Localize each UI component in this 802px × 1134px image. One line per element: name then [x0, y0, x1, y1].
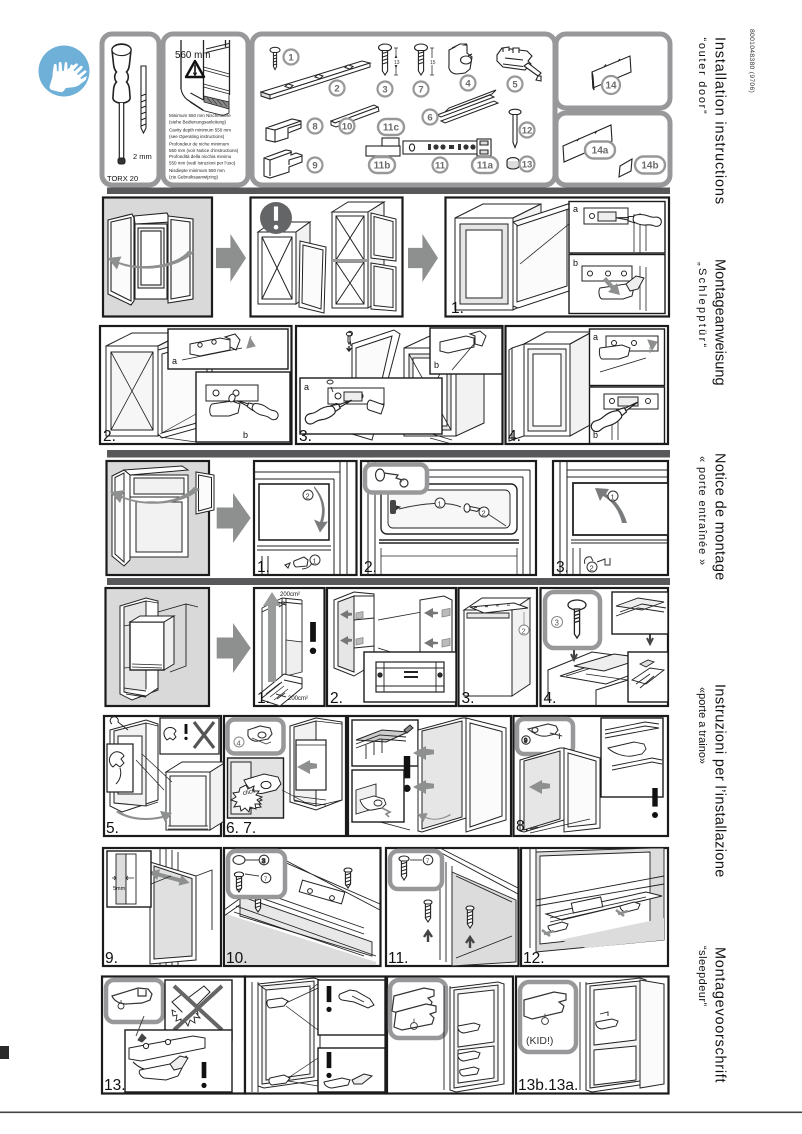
svg-text:(KID!): (KID!) — [526, 1035, 553, 1047]
svg-text:1: 1 — [438, 500, 442, 509]
svg-text:3: 3 — [262, 858, 266, 865]
svg-text:5: 5 — [512, 79, 518, 90]
svg-text:550 mm (voir Notice d’instruct: 550 mm (voir Notice d’instructions) — [169, 148, 239, 153]
svg-text:1.: 1. — [451, 300, 464, 317]
svg-text:a: a — [593, 332, 598, 342]
svg-text:2: 2 — [334, 83, 339, 94]
svg-text:9: 9 — [312, 160, 317, 171]
svg-text:a: a — [172, 356, 177, 366]
svg-text:Montageanweisung: Montageanweisung — [712, 259, 728, 386]
svg-text:Minimum 550 mm Nischentiefe: Minimum 550 mm Nischentiefe — [169, 113, 231, 118]
svg-text:«porte a traino»: «porte a traino» — [696, 687, 708, 764]
svg-text:Cavity depth minimum 550 mm: Cavity depth minimum 550 mm — [169, 128, 231, 133]
svg-text:« porte entraînée »: « porte entraînée » — [696, 456, 708, 566]
svg-text:3.: 3. — [299, 428, 312, 445]
svg-text:TORX 20: TORX 20 — [107, 174, 138, 183]
svg-text:14b: 14b — [641, 161, 658, 172]
svg-text:6. 7.: 6. 7. — [226, 820, 256, 837]
svg-text:9.: 9. — [105, 950, 118, 967]
svg-text:Installation instructions: Installation instructions — [712, 37, 728, 205]
svg-text:11b: 11b — [374, 161, 391, 172]
svg-text:8.: 8. — [516, 818, 529, 835]
svg-text:5.: 5. — [106, 820, 119, 837]
svg-text:15: 15 — [430, 60, 436, 66]
svg-text:7: 7 — [264, 876, 268, 883]
svg-text:12.: 12. — [523, 950, 545, 967]
svg-text:Profondità della nicchia minim: Profondità della nicchia minimo — [169, 154, 232, 159]
svg-text:13b.13a.: 13b.13a. — [518, 1077, 578, 1094]
svg-text:(siehe Bedienungsanleitung): (siehe Bedienungsanleitung) — [169, 120, 227, 125]
svg-text:4: 4 — [465, 78, 471, 89]
svg-text:13.: 13. — [104, 1077, 126, 1094]
svg-text:b: b — [243, 430, 248, 440]
svg-text:Montagevoorschrift: Montagevoorschrift — [712, 947, 728, 1083]
svg-text:14a: 14a — [592, 146, 609, 157]
svg-text:560 mm: 560 mm — [175, 50, 210, 61]
svg-text:1: 1 — [288, 52, 294, 63]
svg-text:4: 4 — [237, 739, 241, 748]
svg-text:„Schlepptür“: „Schlepptür“ — [696, 262, 708, 350]
svg-text:Profondeur de niche minimum: Profondeur de niche minimum — [169, 142, 229, 147]
svg-text:4.: 4. — [508, 428, 521, 445]
svg-text:7: 7 — [418, 84, 423, 95]
svg-text:4.: 4. — [544, 690, 557, 707]
svg-text:5mm: 5mm — [113, 886, 126, 892]
svg-text:10.: 10. — [226, 950, 248, 967]
svg-text:1: 1 — [611, 493, 615, 502]
svg-text:7: 7 — [426, 858, 430, 865]
svg-text:8: 8 — [312, 121, 317, 132]
svg-text:1.: 1. — [257, 559, 270, 576]
svg-text:11: 11 — [435, 160, 446, 171]
svg-text:13: 13 — [522, 159, 533, 170]
svg-text:14: 14 — [605, 81, 617, 92]
svg-text:“outer door”: “outer door” — [696, 38, 708, 116]
svg-text:3: 3 — [382, 84, 387, 95]
svg-text:Instruzioni per l’installazion: Instruzioni per l’installazione — [712, 684, 728, 878]
svg-text:3: 3 — [555, 619, 560, 628]
svg-text:13: 13 — [394, 60, 400, 66]
svg-text:2.: 2. — [103, 428, 116, 445]
svg-text:200cm²: 200cm² — [280, 592, 300, 598]
svg-text:b: b — [434, 360, 439, 370]
svg-text:1.: 1. — [257, 690, 270, 707]
svg-text:Nisdiepte minimum 550 mm: Nisdiepte minimum 550 mm — [169, 168, 225, 173]
svg-text:8001048380 (9706): 8001048380 (9706) — [748, 29, 755, 93]
svg-text:“sleepdeur”: “sleepdeur” — [696, 946, 708, 1007]
svg-text:2.: 2. — [330, 690, 343, 707]
svg-text:2: 2 — [306, 492, 310, 501]
svg-text:10: 10 — [342, 121, 353, 132]
svg-text:200cm²: 200cm² — [288, 696, 308, 702]
svg-text:2 mm: 2 mm — [133, 152, 152, 161]
svg-text:6: 6 — [427, 112, 432, 123]
svg-text:1: 1 — [313, 557, 317, 566]
svg-text:550 mm (vedi Istruzioni per l’: 550 mm (vedi Istruzioni per l’uso) — [169, 161, 236, 166]
svg-text:a: a — [573, 204, 578, 214]
svg-text:(zie Gebruiksaanwijzing): (zie Gebruiksaanwijzing) — [169, 175, 219, 180]
svg-text:3.: 3. — [556, 559, 569, 576]
svg-text:(see Operating instructions): (see Operating instructions) — [169, 134, 225, 139]
svg-text:2: 2 — [482, 509, 486, 518]
svg-text:12: 12 — [522, 125, 533, 136]
svg-text:2: 2 — [522, 627, 526, 636]
svg-text:11c: 11c — [383, 123, 400, 134]
svg-text:2: 2 — [590, 564, 594, 573]
svg-text:a: a — [304, 382, 309, 392]
svg-text:11.: 11. — [388, 950, 408, 967]
svg-text:11a: 11a — [477, 161, 494, 172]
svg-text:2.: 2. — [364, 559, 377, 576]
svg-text:Notice de montage: Notice de montage — [712, 453, 728, 581]
svg-text:b: b — [573, 258, 578, 268]
svg-text:3.: 3. — [462, 690, 475, 707]
